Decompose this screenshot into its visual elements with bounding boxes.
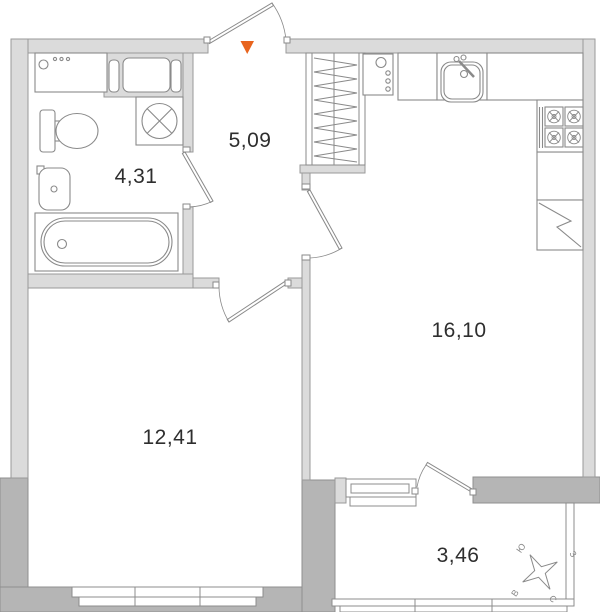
living-room-window	[72, 587, 263, 606]
bathroom-door	[182, 147, 213, 209]
counter-icon	[35, 53, 107, 92]
kitchen-balcony-window	[346, 479, 416, 506]
bathroom-fixtures	[35, 53, 183, 271]
gas-stove-icon	[537, 100, 583, 152]
toilet-icon	[40, 110, 98, 152]
hallway-area-label: 5,09	[229, 129, 272, 153]
refrigerator-icon	[537, 200, 583, 250]
compass-south-label: Ю	[514, 541, 527, 554]
floor-plan-drawing: Ю З В С	[0, 0, 600, 612]
balcony-door	[412, 462, 476, 495]
living-room-area-label: 12,41	[142, 426, 197, 450]
balcony-area-label: 3,46	[437, 544, 480, 568]
wash-basin-icon	[37, 166, 70, 210]
wardrobe-icon	[306, 53, 365, 165]
kitchen-fixtures	[363, 53, 583, 250]
ventilation-fan-icon	[136, 97, 183, 145]
boiler-icon	[363, 54, 393, 95]
kitchen-area-label: 16,10	[431, 319, 486, 343]
floor-plan: Ю З В С 4,31 5,09 16,10 12,41 3,46	[0, 0, 600, 612]
living-room-door	[213, 280, 291, 322]
entrance-marker	[241, 41, 255, 54]
compass-east-label: В	[509, 588, 521, 599]
bathtub-icon	[35, 213, 178, 271]
entrance-door	[204, 3, 290, 44]
bathroom-area-label: 4,31	[115, 165, 158, 189]
kitchen-door	[302, 184, 342, 260]
